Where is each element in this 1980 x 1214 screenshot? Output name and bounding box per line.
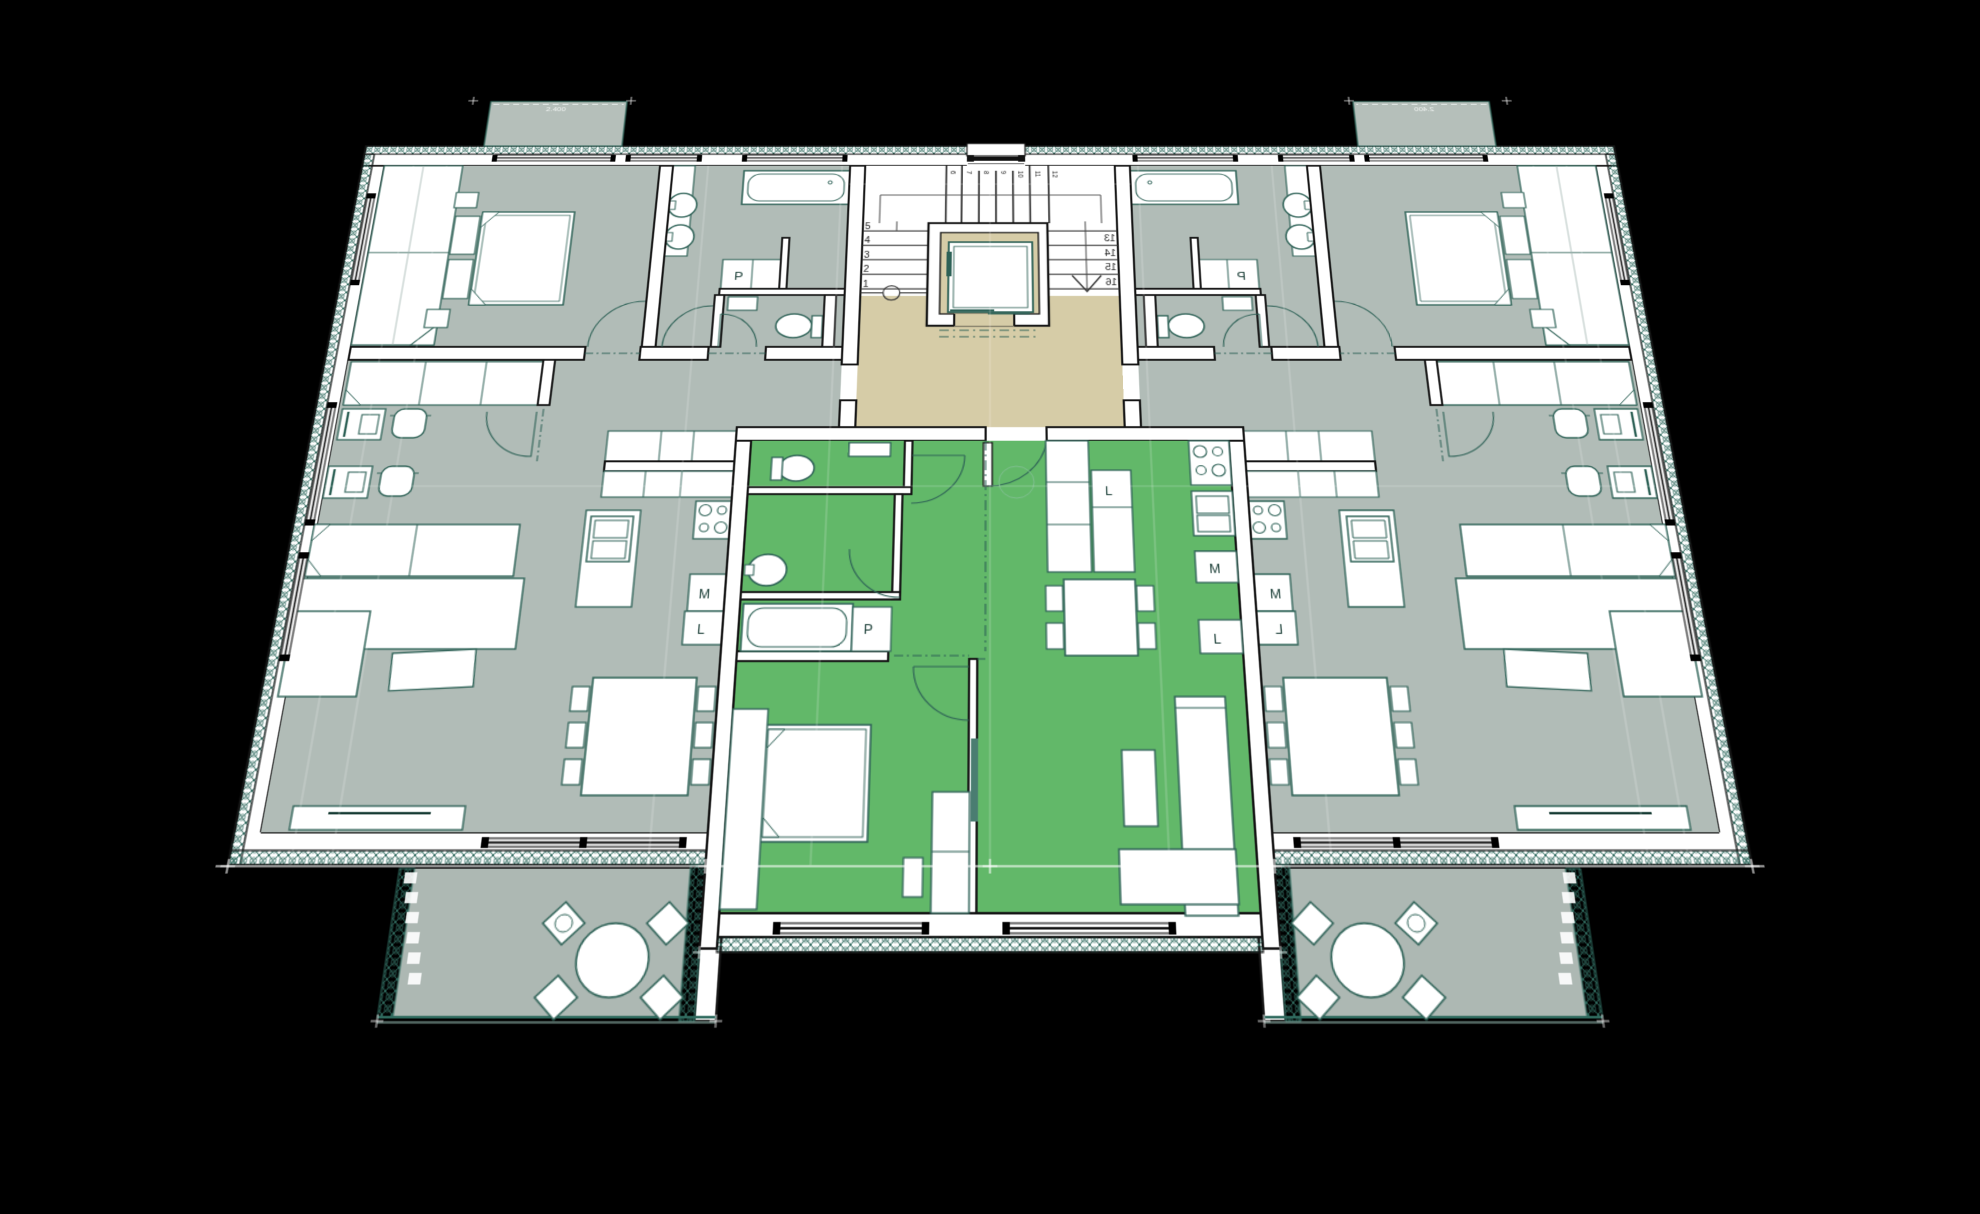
- svg-text:15: 15: [1105, 263, 1117, 273]
- svg-text:2: 2: [863, 264, 869, 274]
- svg-text:L: L: [696, 623, 705, 637]
- svg-text:1: 1: [863, 279, 869, 289]
- svg-text:L: L: [1105, 485, 1113, 498]
- svg-text:6: 6: [948, 171, 956, 175]
- svg-text:14: 14: [1104, 248, 1116, 258]
- svg-text:M: M: [698, 588, 710, 602]
- svg-text:L: L: [1213, 633, 1222, 647]
- svg-text:P: P: [734, 269, 744, 283]
- svg-text:9: 9: [999, 171, 1007, 175]
- svg-text:P: P: [863, 623, 873, 637]
- svg-text:13: 13: [1104, 234, 1116, 243]
- svg-text:4: 4: [864, 236, 870, 245]
- svg-text:8: 8: [982, 171, 990, 175]
- svg-text:2.400: 2.400: [546, 105, 567, 113]
- svg-text:7: 7: [965, 171, 973, 175]
- svg-text:16: 16: [1105, 277, 1117, 287]
- svg-text:10: 10: [1016, 171, 1024, 178]
- svg-text:3: 3: [864, 250, 870, 260]
- svg-text:11: 11: [1033, 171, 1041, 178]
- svg-text:12: 12: [1050, 171, 1058, 178]
- svg-text:M: M: [1209, 563, 1221, 577]
- svg-text:5: 5: [865, 221, 871, 230]
